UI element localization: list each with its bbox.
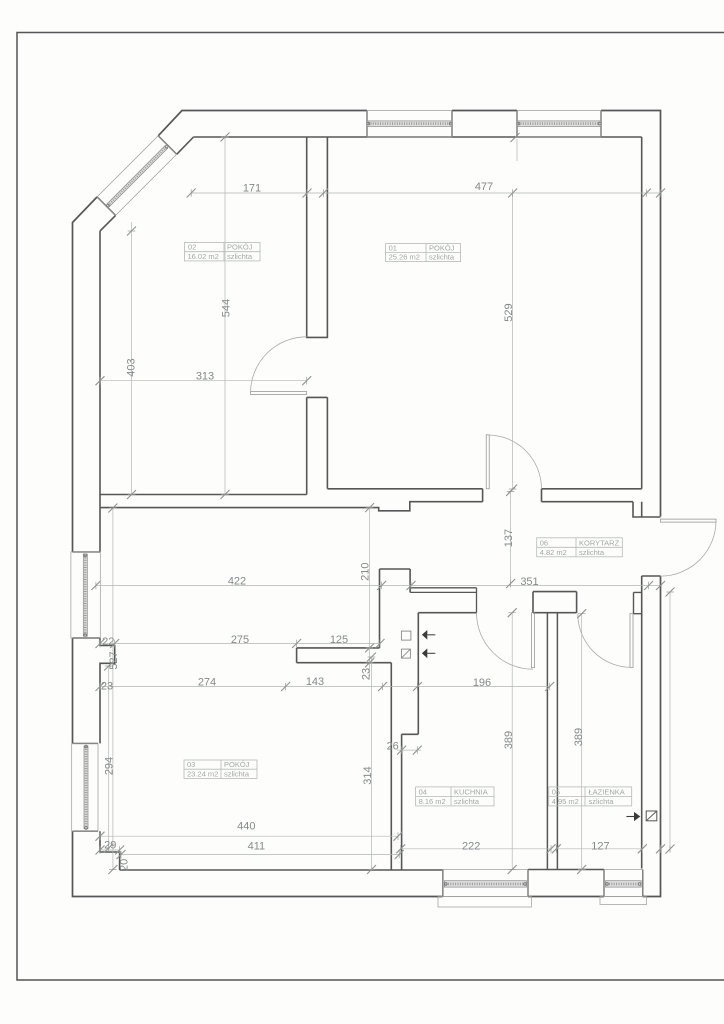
svg-text:314: 314: [362, 766, 374, 784]
svg-text:29: 29: [104, 840, 116, 852]
svg-text:222: 222: [462, 841, 480, 853]
svg-text:4.95 m2: 4.95 m2: [552, 797, 579, 806]
svg-text:szlichta: szlichta: [579, 548, 605, 557]
svg-text:351: 351: [520, 576, 538, 588]
svg-text:23: 23: [101, 681, 113, 693]
svg-text:544: 544: [221, 299, 233, 317]
svg-text:03: 03: [187, 760, 195, 769]
svg-text:527: 527: [108, 651, 120, 669]
svg-text:127: 127: [591, 841, 609, 853]
svg-text:szlichta: szlichta: [429, 253, 455, 262]
svg-text:20: 20: [119, 859, 131, 871]
svg-text:143: 143: [306, 676, 324, 688]
svg-text:210: 210: [360, 563, 372, 581]
svg-text:137: 137: [503, 529, 515, 547]
svg-text:KUCHNIA: KUCHNIA: [454, 787, 488, 796]
svg-text:szlichta: szlichta: [454, 797, 480, 806]
svg-text:16.02 m2: 16.02 m2: [188, 252, 219, 261]
svg-text:422: 422: [228, 576, 246, 588]
svg-text:POKÓJ: POKÓJ: [429, 244, 455, 253]
svg-text:POKÓJ: POKÓJ: [224, 760, 250, 769]
svg-text:274: 274: [198, 677, 216, 689]
svg-text:POKÓJ: POKÓJ: [227, 243, 253, 252]
svg-text:275: 275: [231, 634, 249, 646]
svg-text:23: 23: [360, 668, 372, 680]
svg-text:ŁAZIENKA: ŁAZIENKA: [589, 787, 625, 796]
svg-text:403: 403: [126, 358, 138, 376]
svg-text:125: 125: [330, 634, 348, 646]
svg-text:04: 04: [419, 787, 427, 796]
svg-text:26: 26: [387, 741, 399, 753]
svg-text:25.26 m2: 25.26 m2: [389, 253, 420, 262]
svg-text:4.82 m2: 4.82 m2: [540, 548, 567, 557]
svg-text:8.16 m2: 8.16 m2: [419, 797, 446, 806]
svg-text:01: 01: [389, 244, 397, 253]
svg-text:411: 411: [248, 840, 266, 852]
svg-text:06: 06: [540, 538, 548, 547]
svg-text:05: 05: [552, 787, 560, 796]
svg-text:szlichta: szlichta: [227, 252, 253, 261]
svg-text:KORYTARZ: KORYTARZ: [579, 538, 620, 547]
svg-text:171: 171: [243, 183, 261, 195]
svg-text:313: 313: [196, 371, 214, 383]
svg-text:294: 294: [104, 757, 116, 775]
svg-text:389: 389: [503, 731, 515, 749]
svg-text:22: 22: [102, 636, 114, 648]
svg-text:23.24 m2: 23.24 m2: [187, 769, 218, 778]
svg-text:477: 477: [475, 181, 493, 193]
svg-text:440: 440: [237, 821, 255, 833]
svg-text:02: 02: [188, 243, 196, 252]
svg-text:529: 529: [503, 303, 515, 321]
svg-text:szlichta: szlichta: [224, 769, 250, 778]
svg-text:389: 389: [573, 728, 585, 746]
svg-text:196: 196: [473, 677, 491, 689]
svg-text:szlichta: szlichta: [589, 797, 615, 806]
